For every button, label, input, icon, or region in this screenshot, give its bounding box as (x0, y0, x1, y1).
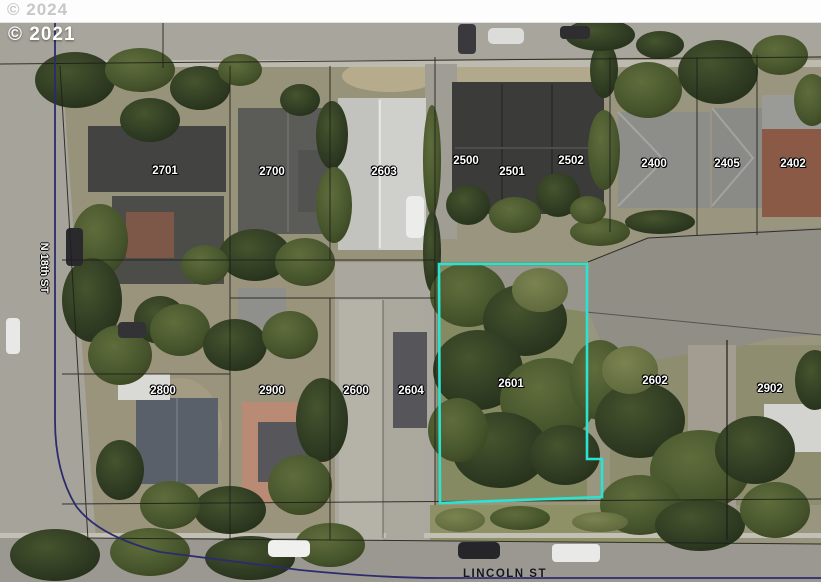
parcel-label-2500: 2500 (453, 155, 479, 167)
car (458, 542, 500, 559)
parcel-label-2902: 2902 (757, 383, 783, 395)
parcel-label-2600: 2600 (343, 385, 369, 397)
parcel-label-2502: 2502 (558, 155, 584, 167)
parcel-label-2900: 2900 (259, 385, 285, 397)
building-2701-red (126, 212, 174, 258)
aerial-photo (0, 0, 821, 582)
car (406, 196, 424, 238)
building-2604 (393, 332, 427, 428)
car (488, 28, 524, 44)
car (6, 318, 20, 354)
parcel-label-2701: 2701 (152, 165, 178, 177)
parcel-label-2402: 2402 (780, 158, 806, 170)
copyright-photo: © 2021 (8, 24, 76, 46)
copyright-outer: © 2024 (7, 0, 68, 20)
car (552, 544, 600, 562)
parcel-label-2501: 2501 (499, 166, 525, 178)
attribution-bar: © 2024 (0, 0, 821, 23)
parcel-label-2800: 2800 (150, 385, 176, 397)
parcel-label-2405: 2405 (714, 158, 740, 170)
street-label-n18th: N 18th ST (38, 243, 50, 294)
parcel-label-2400: 2400 (641, 158, 667, 170)
aerial-parcel-map: © 2024 © 2021 N 18th ST LINCOLN ST 27012… (0, 0, 821, 582)
parcel-label-2602: 2602 (642, 375, 668, 387)
street-label-lincoln: LINCOLN ST (463, 568, 547, 580)
car (560, 26, 590, 39)
car (268, 540, 310, 557)
car (118, 322, 146, 338)
parcel-label-2601: 2601 (498, 378, 524, 390)
parcel-label-2604: 2604 (398, 385, 424, 397)
parcel-label-2603: 2603 (371, 166, 397, 178)
parcel-label-2700: 2700 (259, 166, 285, 178)
car (458, 24, 476, 54)
